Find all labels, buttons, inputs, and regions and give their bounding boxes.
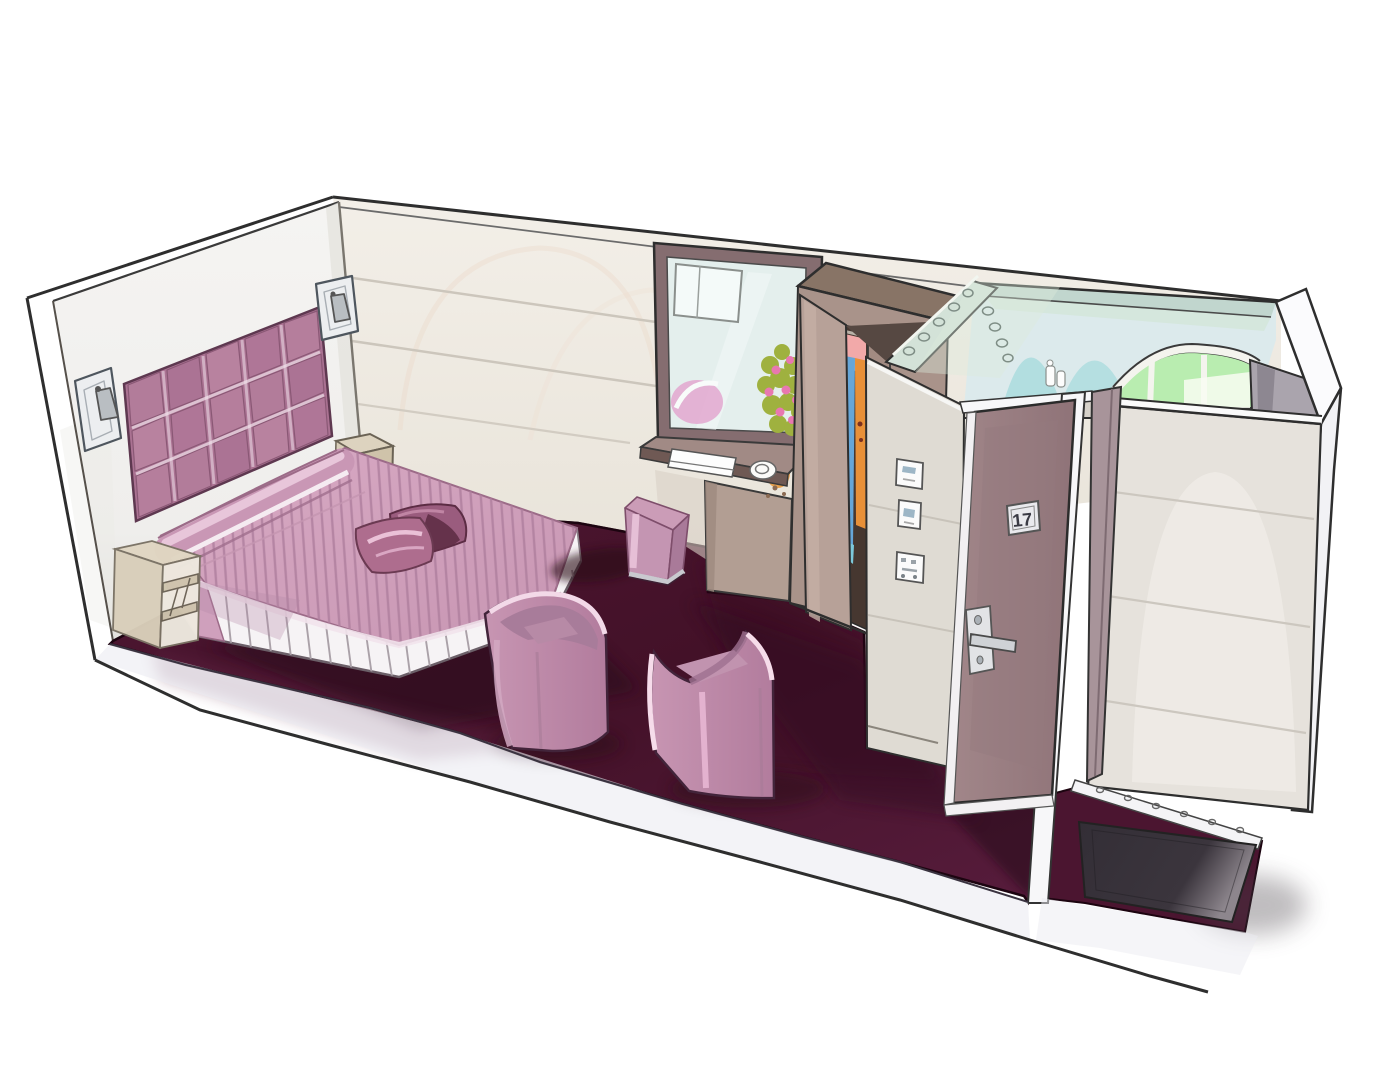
- svg-text:17: 17: [1011, 509, 1033, 531]
